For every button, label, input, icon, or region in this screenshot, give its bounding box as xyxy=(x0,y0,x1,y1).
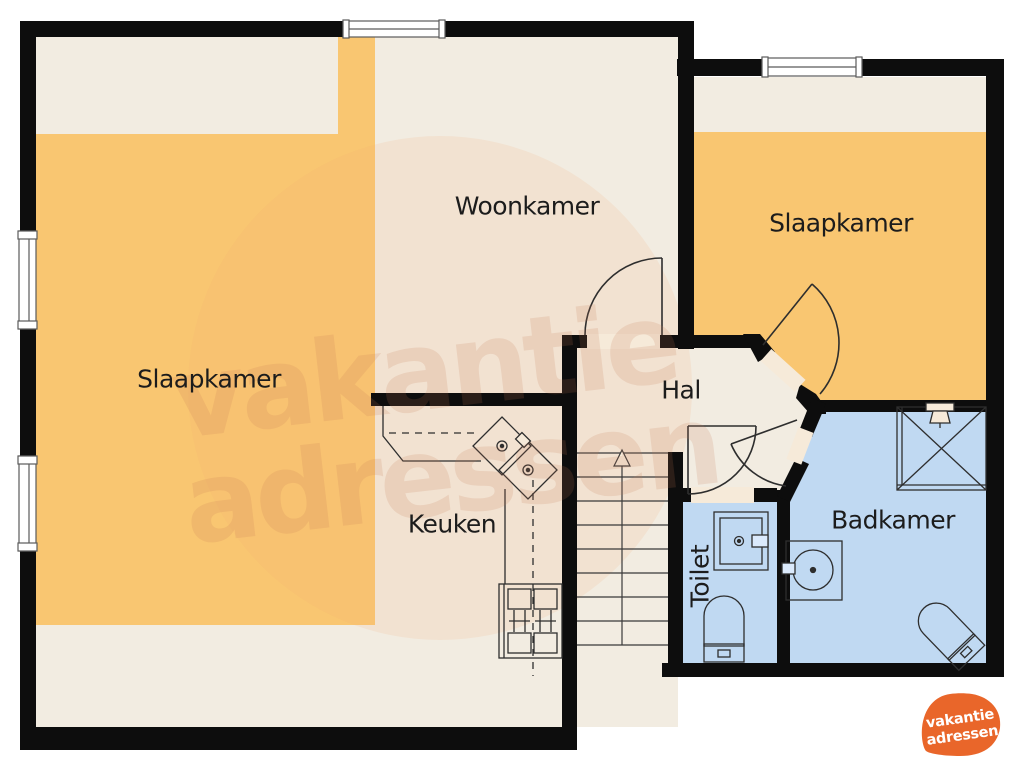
label-slaapkamer-right: Slaapkamer xyxy=(769,209,913,238)
wall-left-outer xyxy=(20,21,36,750)
wall-hal-stairs-left xyxy=(562,335,577,750)
window-left-lower xyxy=(18,456,37,551)
label-badkamer: Badkamer xyxy=(831,506,955,535)
label-toilet: Toilet xyxy=(686,545,715,607)
wall-toilet-top-a xyxy=(680,488,691,502)
window-top-left xyxy=(343,20,445,38)
wall-bottom-left-section xyxy=(20,727,577,750)
wall-bottom-right-section xyxy=(662,663,1004,677)
badkamer-floor xyxy=(790,408,986,663)
doorway-hal-toilet xyxy=(691,487,754,503)
label-keuken: Keuken xyxy=(408,510,496,539)
wall-slaapkamer-right-bottom xyxy=(820,400,1004,412)
window-top-right xyxy=(762,57,862,77)
wall-right-outer xyxy=(986,59,1004,677)
label-hal: Hal xyxy=(661,376,701,405)
doorway-woonkamer-hal xyxy=(587,334,660,349)
label-woonkamer: Woonkamer xyxy=(455,192,600,221)
wall-stairs-toilet xyxy=(668,452,683,663)
window-left-upper xyxy=(18,231,37,329)
wall-keuken-top xyxy=(371,393,563,406)
wall-toilet-top-b xyxy=(754,488,777,502)
wall-hal-top-a xyxy=(563,335,587,348)
floor-plan-canvas: vakantie adressen vakantie adressen Woon… xyxy=(0,0,1024,768)
site-logo: vakantie adressen xyxy=(922,693,1000,756)
label-slaapkamer-left: Slaapkamer xyxy=(137,365,281,394)
wall-hal-top-b xyxy=(660,335,752,348)
wall-toilet-badkamer xyxy=(777,490,790,663)
